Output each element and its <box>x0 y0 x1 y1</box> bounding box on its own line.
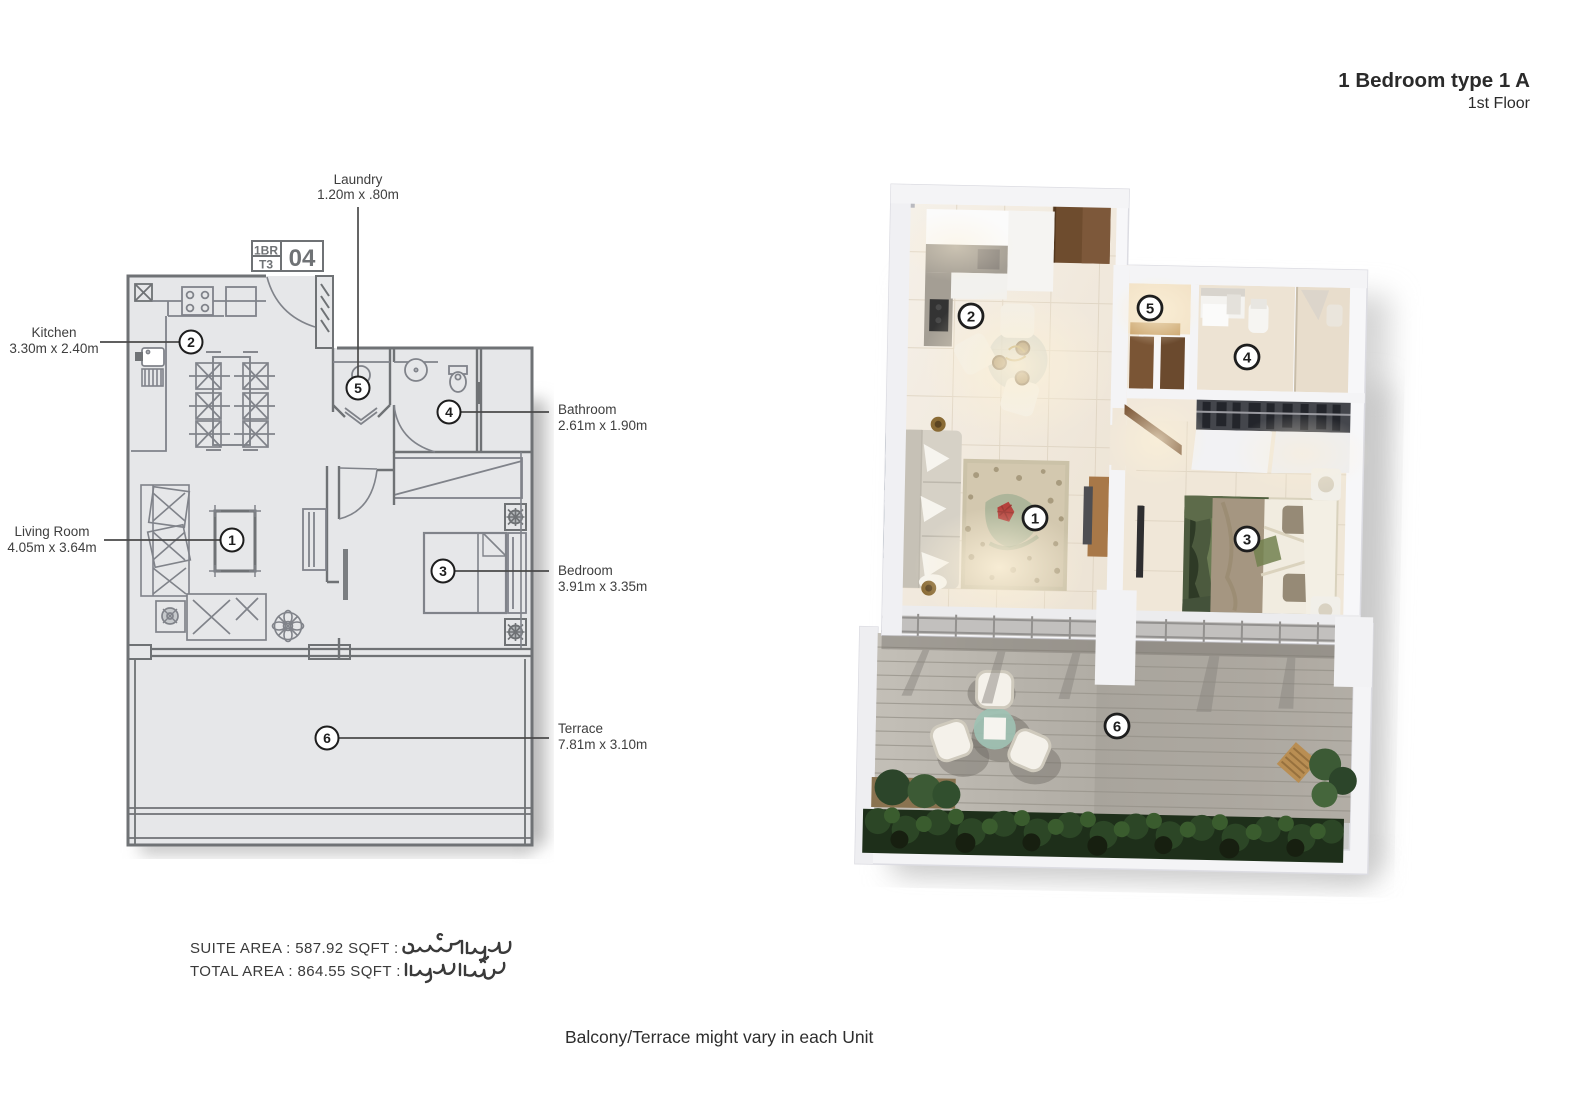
svg-text:3.91m x 3.35m: 3.91m x 3.35m <box>558 579 647 594</box>
svg-text:SUITE AREA : 587.92 SQFT :: SUITE AREA : 587.92 SQFT : <box>190 940 399 957</box>
svg-text:7.81m x 3.10m: 7.81m x 3.10m <box>558 737 647 752</box>
svg-text:2.61m x 1.90m: 2.61m x 1.90m <box>558 418 647 433</box>
svg-text:1: 1 <box>1031 511 1039 528</box>
svg-text:1: 1 <box>228 532 236 548</box>
svg-text:2: 2 <box>187 334 195 350</box>
svg-text:3: 3 <box>439 563 447 579</box>
svg-text:TOTAL AREA : 864.55 SQFT :: TOTAL AREA : 864.55 SQFT : <box>190 963 401 980</box>
svg-text:Balcony/Terrace might vary in: Balcony/Terrace might vary in each Unit <box>565 1027 873 1047</box>
svg-text:Terrace: Terrace <box>558 721 603 736</box>
svg-text:3: 3 <box>1243 532 1251 549</box>
svg-text:6: 6 <box>1113 719 1121 736</box>
svg-text:4.05m x 3.64m: 4.05m x 3.64m <box>7 540 96 555</box>
svg-text:T3: T3 <box>259 258 273 272</box>
svg-text:2: 2 <box>967 309 975 326</box>
svg-text:4: 4 <box>1243 350 1252 367</box>
svg-text:Bathroom: Bathroom <box>558 402 617 417</box>
svg-text:1 Bedroom type 1 A: 1 Bedroom type 1 A <box>1338 69 1530 92</box>
svg-text:Bedroom: Bedroom <box>558 563 613 578</box>
svg-text:6: 6 <box>323 730 331 746</box>
svg-text:1.20m x .80m: 1.20m x .80m <box>317 187 399 202</box>
svg-text:1st Floor: 1st Floor <box>1468 95 1531 112</box>
svg-text:5: 5 <box>354 380 362 396</box>
svg-text:Laundry: Laundry <box>334 172 383 187</box>
svg-text:Kitchen: Kitchen <box>31 325 76 340</box>
svg-text:Living Room: Living Room <box>14 524 89 539</box>
svg-text:04: 04 <box>289 245 316 272</box>
svg-text:3.30m x 2.40m: 3.30m x 2.40m <box>9 341 98 356</box>
svg-text:1BR: 1BR <box>254 244 278 258</box>
svg-text:4: 4 <box>445 404 453 420</box>
svg-text:5: 5 <box>1146 301 1154 318</box>
